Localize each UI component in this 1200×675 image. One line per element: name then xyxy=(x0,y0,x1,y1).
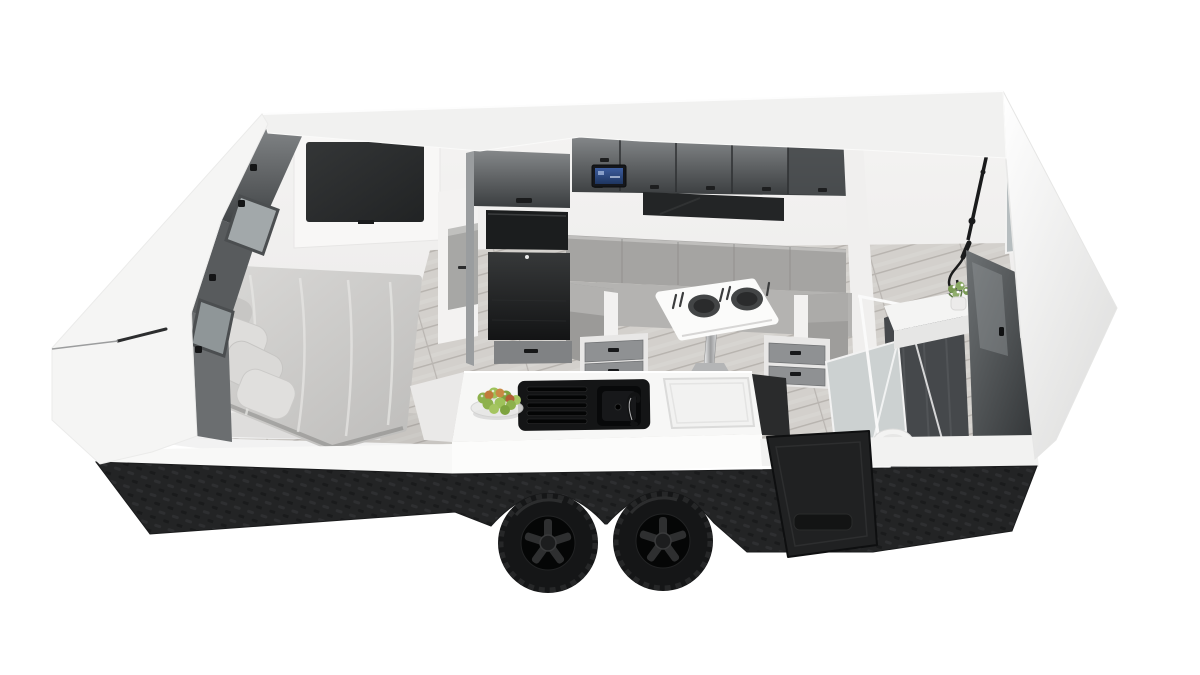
tower-side xyxy=(466,151,474,366)
sink-drain xyxy=(615,404,621,410)
wheel-hub xyxy=(540,535,556,551)
kitchen-sink xyxy=(518,379,651,431)
island-bench xyxy=(410,372,790,477)
fridge xyxy=(488,252,570,340)
wheel-front xyxy=(498,493,598,593)
bedside-cabinet-handle xyxy=(458,266,467,269)
flower-vase xyxy=(951,297,966,310)
caravan-cutaway-render xyxy=(0,0,1200,675)
cabinet-handle xyxy=(999,327,1004,336)
wheel-rear xyxy=(613,491,713,591)
fridge-button xyxy=(525,255,529,259)
radio-unit xyxy=(592,165,626,187)
tower-drawer-handle xyxy=(524,349,538,353)
tv-screen xyxy=(306,142,424,222)
step-handle-recess xyxy=(794,514,852,530)
tv-stand xyxy=(358,220,374,224)
render-canvas: 3D cutaway floor plan render of a carava… xyxy=(0,0,1200,675)
wheel-hub xyxy=(655,533,671,549)
tower-locker-handle xyxy=(516,198,532,203)
